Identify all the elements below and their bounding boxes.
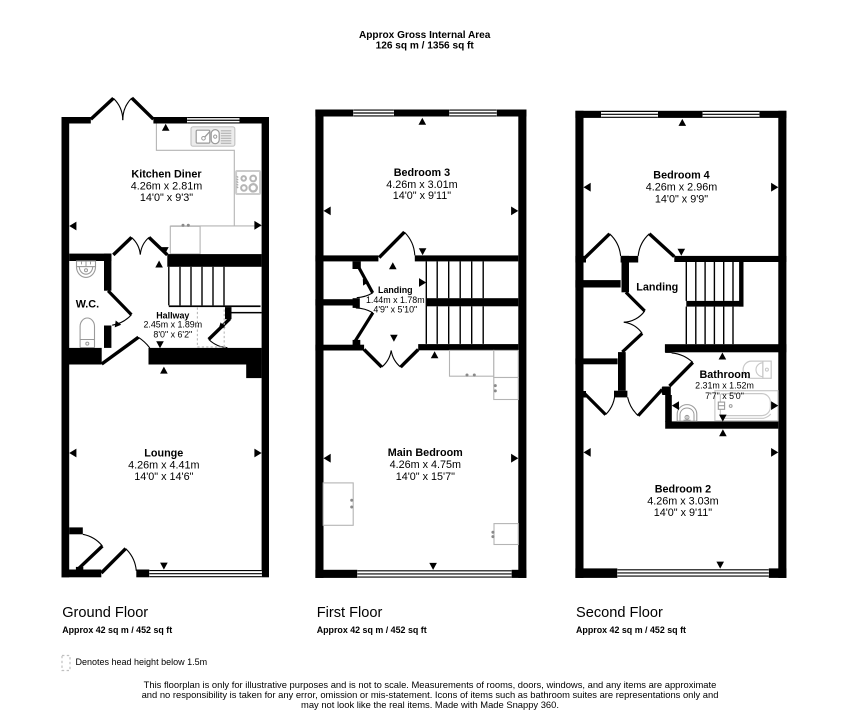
svg-text:Landing: Landing — [636, 282, 678, 294]
svg-text:may not look like the real ite: may not look like the real items. Made w… — [301, 699, 559, 710]
svg-text:Lounge: Lounge — [144, 447, 183, 459]
svg-text:First Floor: First Floor — [317, 605, 383, 621]
svg-text:2.31m x 1.52m: 2.31m x 1.52m — [695, 381, 754, 391]
svg-text:7'7" x 5'0": 7'7" x 5'0" — [705, 391, 744, 401]
svg-text:Ground Floor: Ground Floor — [62, 605, 148, 621]
svg-text:14'0" x 9'11": 14'0" x 9'11" — [393, 190, 452, 202]
svg-text:Bedroom 2: Bedroom 2 — [655, 483, 711, 495]
svg-text:Main Bedroom: Main Bedroom — [388, 447, 463, 459]
svg-text:14'0" x 15'7": 14'0" x 15'7" — [396, 471, 455, 483]
svg-text:14'0" x 9'11": 14'0" x 9'11" — [654, 507, 713, 519]
svg-text:4'9" x 5'10": 4'9" x 5'10" — [373, 305, 417, 315]
svg-text:Denotes head height below 1.5m: Denotes head height below 1.5m — [76, 657, 208, 667]
svg-text:4.26m x 2.96m: 4.26m x 2.96m — [646, 182, 717, 194]
svg-text:8'0" x 6'2": 8'0" x 6'2" — [153, 329, 192, 339]
svg-text:4.26m x 3.03m: 4.26m x 3.03m — [647, 495, 718, 507]
svg-text:14'0" x 9'9": 14'0" x 9'9" — [655, 193, 708, 205]
svg-text:2.45m x 1.89m: 2.45m x 1.89m — [143, 320, 202, 330]
svg-text:Approx Gross Internal Area: Approx Gross Internal Area — [359, 30, 491, 41]
svg-text:126 sq m / 1356 sq ft: 126 sq m / 1356 sq ft — [376, 41, 475, 52]
svg-text:Bedroom 3: Bedroom 3 — [394, 167, 450, 179]
svg-text:Bedroom 4: Bedroom 4 — [653, 170, 709, 182]
svg-text:Landing: Landing — [378, 285, 413, 295]
svg-text:Bathroom: Bathroom — [700, 369, 751, 381]
svg-text:Approx 42 sq m / 452 sq ft: Approx 42 sq m / 452 sq ft — [576, 625, 686, 635]
svg-text:Approx 42 sq m / 452 sq ft: Approx 42 sq m / 452 sq ft — [62, 625, 172, 635]
svg-text:4.26m x 3.01m: 4.26m x 3.01m — [386, 179, 457, 191]
svg-text:4.26m x 4.41m: 4.26m x 4.41m — [128, 460, 199, 472]
svg-text:Approx 42 sq m / 452 sq ft: Approx 42 sq m / 452 sq ft — [317, 625, 427, 635]
svg-text:Kitchen Diner: Kitchen Diner — [131, 169, 202, 181]
svg-text:14'0" x 9'3": 14'0" x 9'3" — [140, 192, 193, 204]
svg-text:W.C.: W.C. — [76, 299, 99, 311]
svg-text:14'0" x 14'6": 14'0" x 14'6" — [134, 471, 193, 483]
svg-text:Second Floor: Second Floor — [576, 605, 663, 621]
svg-text:1.44m x 1.78m: 1.44m x 1.78m — [366, 295, 425, 305]
svg-text:4.26m x 4.75m: 4.26m x 4.75m — [390, 459, 461, 471]
svg-text:4.26m x 2.81m: 4.26m x 2.81m — [131, 181, 202, 193]
